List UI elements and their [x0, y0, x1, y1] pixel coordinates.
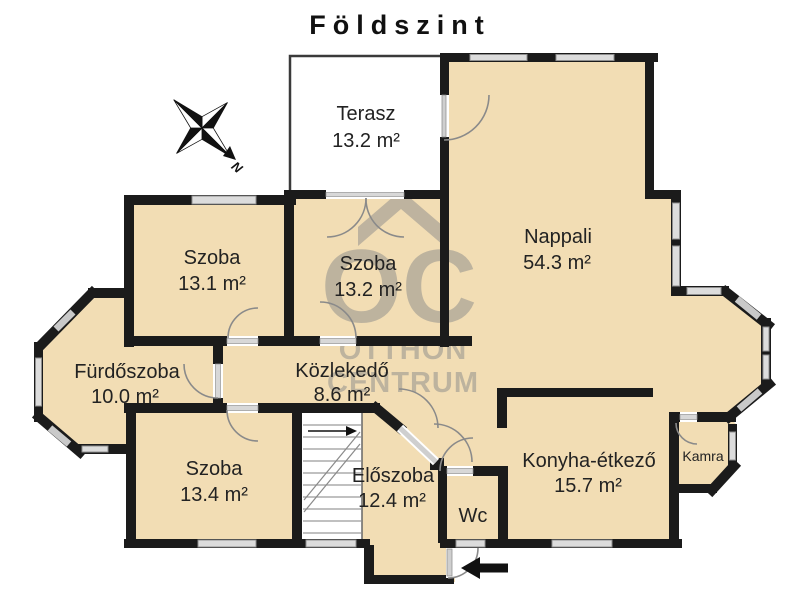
compass-north-label: N: [229, 158, 246, 176]
window: [36, 358, 42, 406]
floorplan-page: OC OTTHON CENTRUM: [0, 0, 800, 602]
door-sill: [216, 364, 221, 398]
window: [763, 355, 769, 379]
door-leaf: [442, 95, 446, 137]
svg-text:8.6 m²: 8.6 m²: [314, 384, 371, 406]
svg-text:15.7 m²: 15.7 m²: [554, 475, 622, 497]
door-sill: [680, 415, 697, 420]
room-label-wc: Wc: [459, 505, 488, 527]
svg-text:13.2 m²: 13.2 m²: [334, 279, 402, 301]
svg-text:Szoba: Szoba: [186, 458, 244, 480]
svg-text:13.4 m²: 13.4 m²: [180, 484, 248, 506]
svg-text:Nappali: Nappali: [524, 226, 592, 248]
window: [730, 432, 736, 460]
window: [470, 55, 527, 61]
svg-text:Wc: Wc: [459, 505, 488, 527]
window: [192, 196, 256, 204]
window: [306, 540, 356, 547]
window: [198, 540, 256, 547]
svg-text:54.3 m²: 54.3 m²: [523, 252, 591, 274]
svg-text:13.1 m²: 13.1 m²: [178, 273, 246, 295]
svg-text:Fürdőszoba: Fürdőszoba: [74, 361, 180, 383]
svg-text:10.0 m²: 10.0 m²: [91, 386, 159, 408]
page-title: Földszint: [309, 10, 490, 40]
window: [556, 55, 614, 61]
floorplan-drawing: OC OTTHON CENTRUM: [0, 0, 800, 602]
svg-text:Konyha-étkező: Konyha-étkező: [522, 450, 655, 472]
window: [763, 327, 769, 351]
svg-text:12.4 m²: 12.4 m²: [358, 490, 426, 512]
entry-door-leaf: [447, 549, 452, 576]
entry-arrow-icon: [461, 557, 508, 579]
svg-text:Kamra: Kamra: [682, 448, 723, 464]
window: [673, 203, 680, 239]
door-sill: [320, 339, 356, 344]
window: [552, 540, 612, 547]
window: [687, 288, 721, 295]
door-sill: [447, 469, 473, 474]
svg-text:13.2 m²: 13.2 m²: [332, 130, 400, 152]
window: [673, 246, 680, 286]
svg-text:Szoba: Szoba: [340, 253, 398, 275]
room-label-kamra: Kamra: [682, 448, 723, 464]
door-sill: [227, 406, 258, 411]
door-sill: [326, 193, 404, 197]
compass-icon: N: [148, 74, 255, 181]
svg-text:Terasz: Terasz: [337, 103, 396, 125]
window: [456, 540, 485, 547]
svg-text:Előszoba: Előszoba: [352, 465, 435, 487]
door-sill: [227, 339, 258, 344]
window: [82, 446, 108, 452]
svg-text:Közlekedő: Közlekedő: [295, 360, 388, 382]
svg-text:Szoba: Szoba: [184, 247, 242, 269]
